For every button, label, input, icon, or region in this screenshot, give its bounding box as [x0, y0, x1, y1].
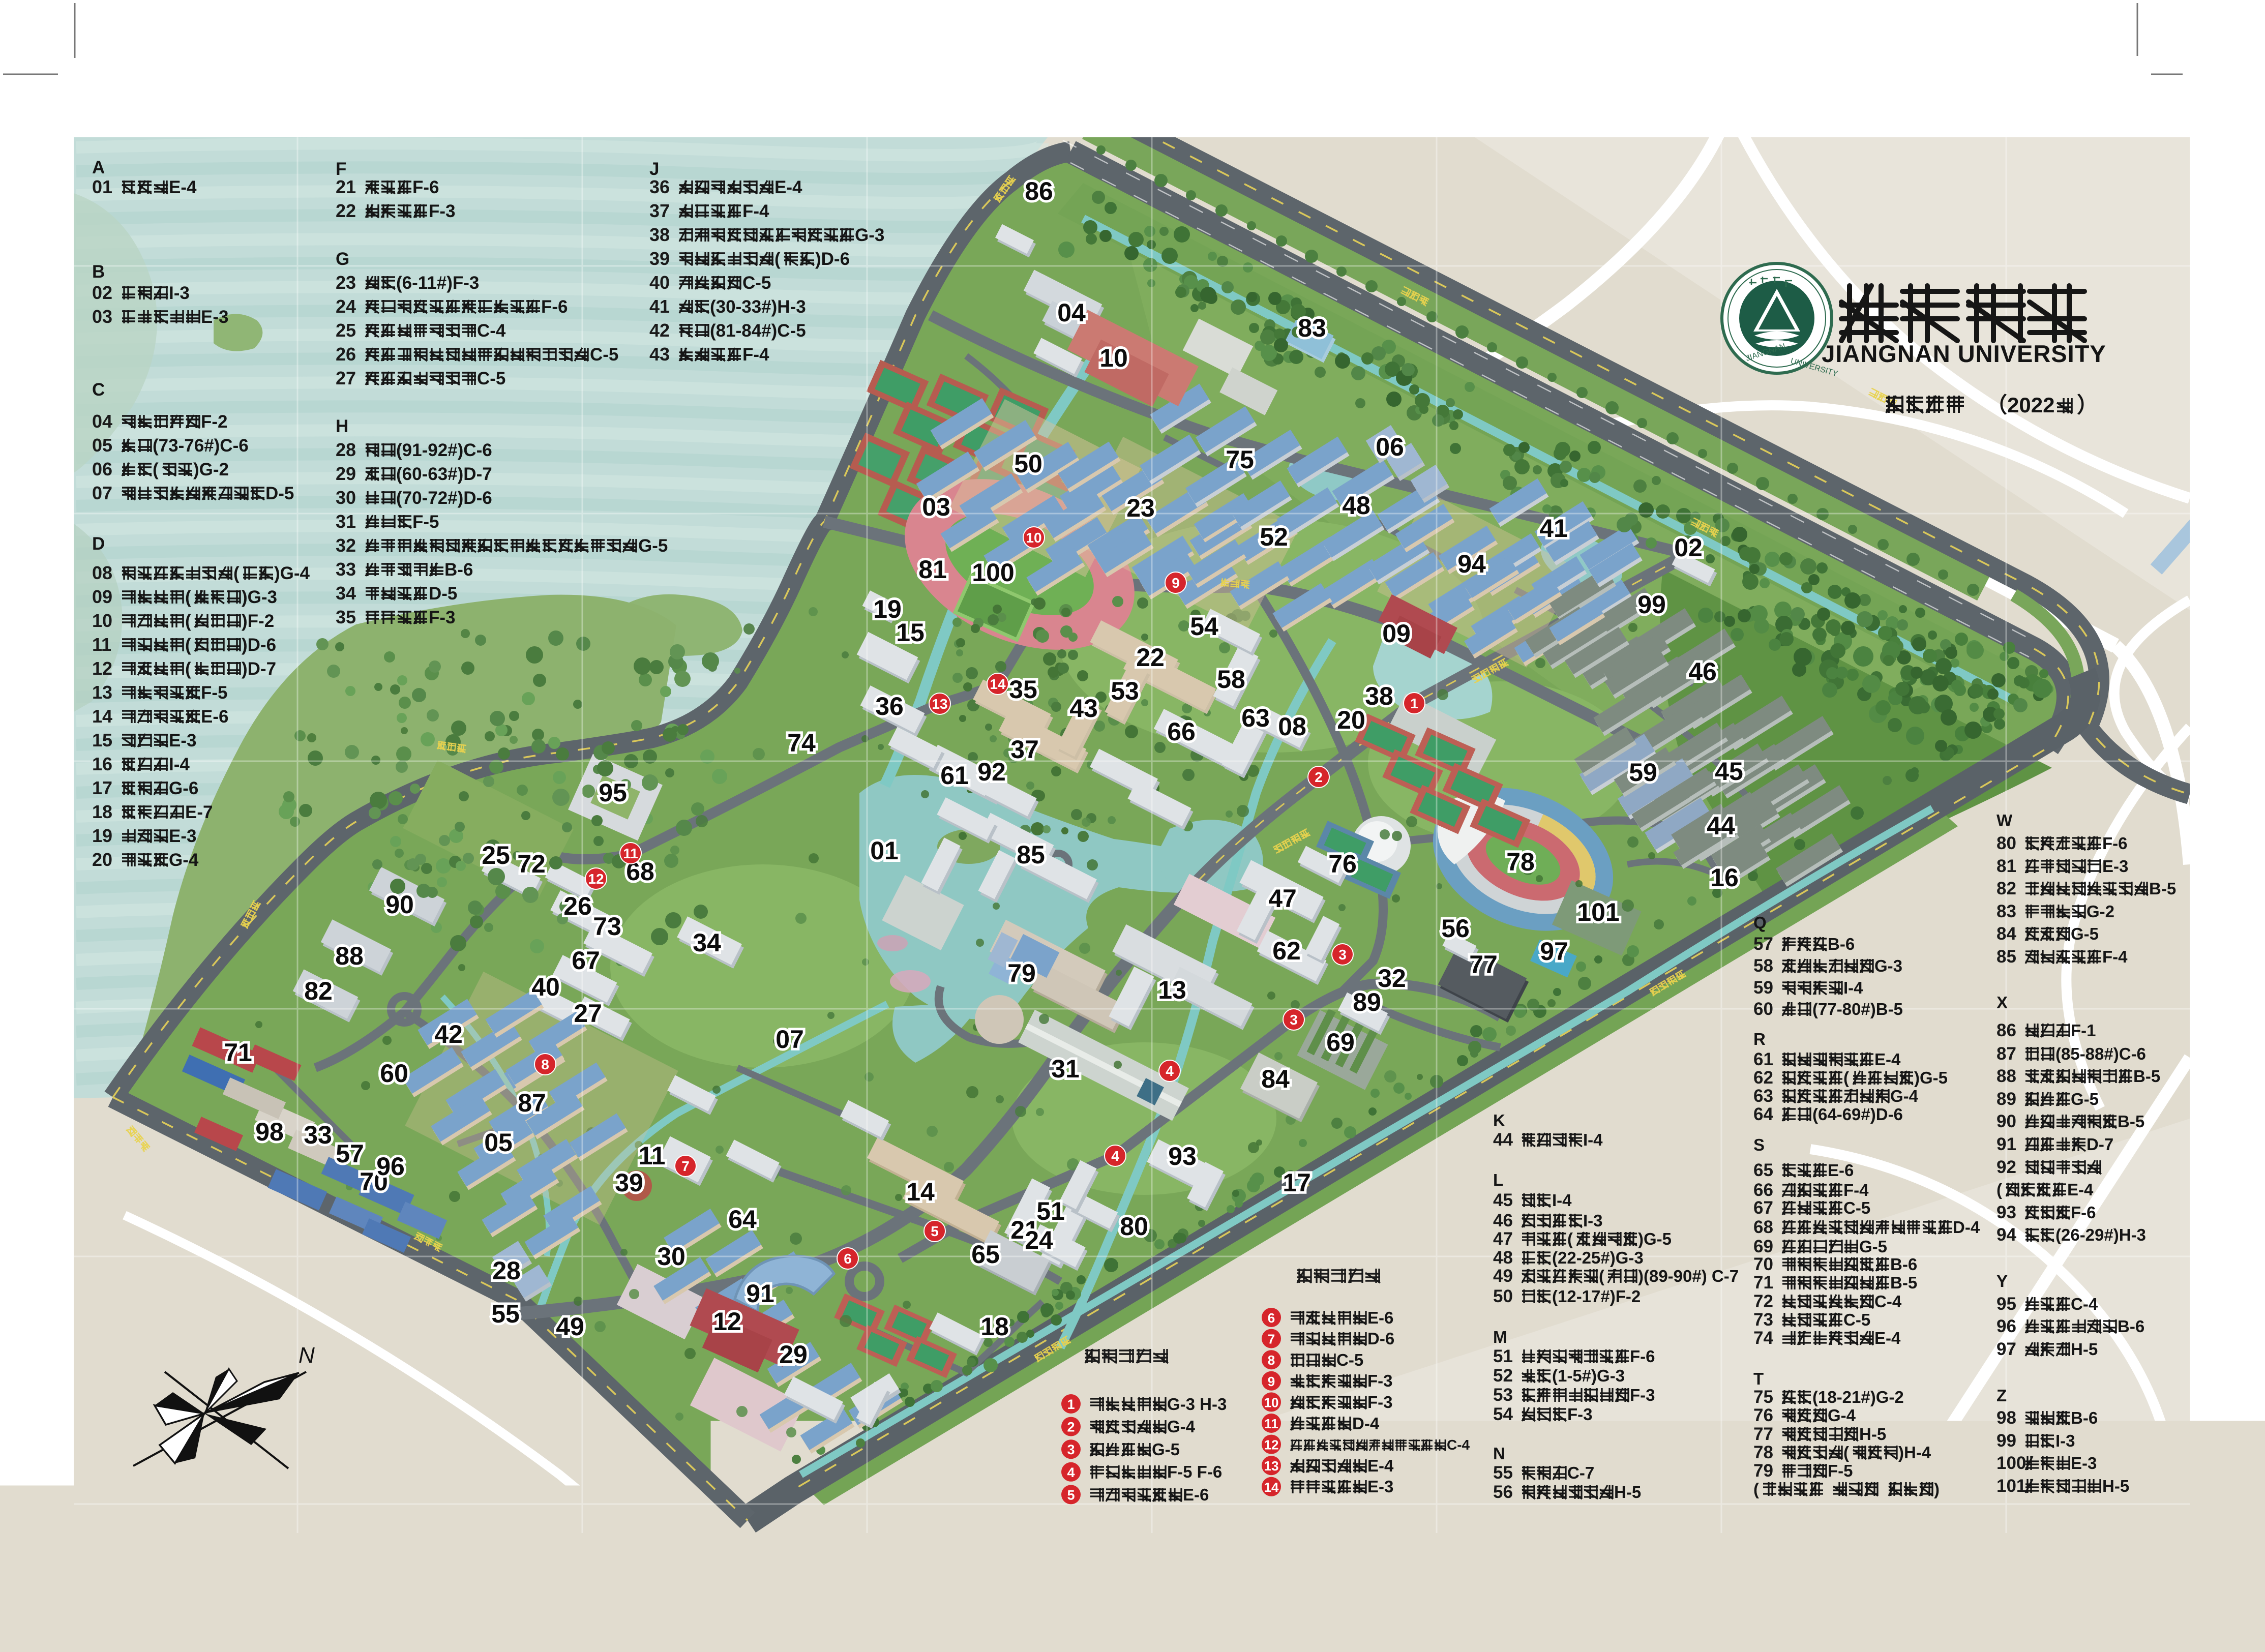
svg-text:75: 75	[1226, 445, 1254, 474]
svg-text:03: 03	[92, 306, 112, 327]
svg-text:C-5: C-5	[477, 369, 505, 388]
svg-text:01: 01	[870, 836, 899, 865]
svg-text:99: 99	[1637, 590, 1666, 619]
svg-text:B-5: B-5	[2118, 1112, 2144, 1131]
svg-text:F-5 F-6: F-5 F-6	[1167, 1462, 1222, 1481]
svg-text:72: 72	[1753, 1291, 1773, 1311]
svg-text:90: 90	[385, 890, 414, 919]
svg-text:93: 93	[1168, 1142, 1197, 1170]
svg-text:G-5: G-5	[1152, 1440, 1180, 1459]
svg-text:E-4: E-4	[1367, 1456, 1394, 1475]
svg-text:02: 02	[92, 282, 112, 303]
svg-text:D-5: D-5	[265, 484, 294, 503]
svg-text:I-4: I-4	[169, 755, 190, 774]
svg-text:E-6: E-6	[1828, 1161, 1854, 1180]
svg-text:F-2: F-2	[201, 412, 228, 432]
svg-text:(: (	[774, 249, 781, 269]
svg-text:F-5: F-5	[412, 512, 439, 532]
svg-text:F-4: F-4	[742, 345, 769, 365]
svg-text:C-7: C-7	[1567, 1463, 1594, 1482]
svg-text:101: 101	[1996, 1476, 2026, 1496]
svg-text:12: 12	[92, 658, 112, 679]
svg-text:14: 14	[990, 676, 1006, 692]
svg-text:F-1: F-1	[2071, 1021, 2096, 1040]
svg-text:G-2: G-2	[2087, 902, 2114, 921]
svg-text:(: (	[185, 611, 191, 631]
svg-text:66: 66	[1167, 717, 1196, 746]
svg-text:G-6: G-6	[169, 778, 198, 798]
svg-text:51: 51	[1493, 1346, 1513, 1366]
svg-text:46: 46	[1493, 1211, 1513, 1230]
svg-text:Y: Y	[1996, 1272, 2008, 1290]
svg-text:42: 42	[434, 1020, 463, 1048]
svg-text:8: 8	[1268, 1353, 1275, 1368]
svg-text:86: 86	[1996, 1020, 2016, 1040]
svg-text:D-7: D-7	[2087, 1135, 2113, 1154]
svg-text:C-5: C-5	[1843, 1310, 1870, 1329]
svg-text:88: 88	[1996, 1066, 2016, 1086]
svg-text:F-6: F-6	[2102, 834, 2128, 853]
svg-text:30: 30	[657, 1242, 686, 1271]
svg-text:50: 50	[1014, 449, 1042, 478]
svg-text:C-5: C-5	[742, 273, 771, 293]
svg-text:89: 89	[1996, 1089, 2016, 1109]
svg-text:45: 45	[1493, 1190, 1513, 1210]
svg-text:L: L	[1493, 1170, 1503, 1189]
svg-text:80: 80	[1996, 833, 2016, 853]
svg-text:29: 29	[336, 463, 356, 484]
svg-text:H-5: H-5	[1614, 1483, 1641, 1501]
svg-text:04: 04	[92, 411, 112, 432]
svg-text:(73-76#)C-6: (73-76#)C-6	[153, 436, 249, 456]
svg-text:65: 65	[971, 1240, 1000, 1269]
svg-text:94: 94	[1457, 550, 1486, 578]
svg-text:I-3: I-3	[169, 283, 190, 303]
svg-text:)F-2: )F-2	[242, 611, 274, 631]
svg-text:87: 87	[518, 1089, 546, 1117]
svg-text:1: 1	[1410, 696, 1418, 711]
svg-text:)G-3: )G-3	[242, 587, 277, 607]
svg-text:39: 39	[615, 1168, 643, 1197]
svg-text:11: 11	[92, 634, 111, 655]
svg-text:(: (	[1843, 1443, 1849, 1462]
svg-text:20: 20	[92, 849, 112, 870]
svg-text:F-4: F-4	[2102, 947, 2128, 966]
svg-text:G-3: G-3	[855, 225, 884, 245]
svg-text:(: (	[1843, 1068, 1849, 1087]
svg-text:81: 81	[918, 555, 947, 584]
svg-text:I-4: I-4	[1552, 1191, 1572, 1210]
svg-text:79: 79	[1007, 959, 1036, 987]
svg-text:7: 7	[681, 1158, 690, 1174]
svg-text:C-5: C-5	[1843, 1198, 1870, 1217]
svg-text:16: 16	[92, 754, 112, 774]
svg-text:71: 71	[1753, 1273, 1773, 1293]
svg-text:17: 17	[92, 777, 112, 798]
svg-text:97: 97	[1996, 1339, 2016, 1359]
svg-text:9: 9	[1268, 1374, 1275, 1389]
svg-text:12: 12	[713, 1307, 741, 1336]
svg-text:(6-11#)F-3: (6-11#)F-3	[396, 273, 479, 293]
svg-text:09: 09	[92, 586, 112, 607]
svg-text:I-4: I-4	[1583, 1130, 1603, 1149]
svg-text:5: 5	[931, 1223, 939, 1239]
svg-text:)D-6: )D-6	[815, 249, 850, 269]
svg-text:68: 68	[1753, 1217, 1773, 1237]
svg-text:21: 21	[336, 176, 356, 197]
svg-text:42: 42	[649, 320, 670, 341]
svg-text:10: 10	[92, 610, 112, 631]
svg-text:77: 77	[1469, 950, 1498, 979]
svg-text:34: 34	[336, 583, 356, 604]
svg-text:78: 78	[1753, 1443, 1773, 1462]
svg-text:62: 62	[1753, 1068, 1773, 1088]
svg-text:64: 64	[1753, 1104, 1773, 1124]
svg-text:13: 13	[932, 696, 947, 712]
svg-text:13: 13	[92, 682, 112, 703]
svg-text:72: 72	[517, 850, 546, 878]
svg-text:50: 50	[1493, 1286, 1513, 1306]
svg-text:E-6: E-6	[1367, 1308, 1393, 1327]
svg-text:70: 70	[1753, 1254, 1773, 1274]
svg-text:9: 9	[1172, 575, 1180, 591]
svg-text:26: 26	[336, 344, 356, 365]
svg-text:29: 29	[779, 1340, 808, 1369]
svg-text:55: 55	[491, 1300, 520, 1328]
svg-text:98: 98	[1996, 1408, 2016, 1428]
svg-text:16: 16	[1710, 863, 1739, 892]
svg-text:07: 07	[776, 1025, 804, 1054]
svg-text:69: 69	[1753, 1237, 1773, 1256]
svg-text:01: 01	[92, 176, 112, 197]
svg-text:85: 85	[1017, 840, 1045, 869]
svg-text:R: R	[1753, 1030, 1766, 1048]
svg-text:D: D	[92, 534, 105, 554]
svg-text:100: 100	[972, 558, 1014, 587]
svg-text:B-5: B-5	[1890, 1273, 1917, 1292]
svg-text:07: 07	[92, 483, 112, 503]
svg-text:31: 31	[336, 511, 356, 532]
svg-text:(: (	[185, 587, 191, 607]
svg-text:39: 39	[649, 248, 670, 269]
svg-text:83: 83	[1996, 902, 2016, 921]
svg-text:38: 38	[1365, 682, 1393, 710]
svg-text:87: 87	[1996, 1044, 2016, 1064]
svg-text:96: 96	[376, 1152, 405, 1181]
svg-text:63: 63	[1241, 704, 1270, 732]
svg-text:61: 61	[940, 761, 969, 790]
svg-text:52: 52	[1493, 1366, 1513, 1386]
svg-text:62: 62	[1272, 937, 1301, 965]
svg-text:55: 55	[1493, 1463, 1513, 1483]
svg-text:(: (	[1599, 1267, 1604, 1285]
svg-text:24: 24	[1025, 1226, 1053, 1254]
svg-text:25: 25	[482, 841, 510, 869]
svg-text:100: 100	[1996, 1453, 2026, 1473]
svg-text:(81-84#)C-5: (81-84#)C-5	[710, 321, 806, 341]
svg-text:47: 47	[1493, 1229, 1513, 1249]
svg-text:79: 79	[1753, 1461, 1773, 1481]
svg-text:F-3: F-3	[429, 608, 456, 627]
svg-text:E-4: E-4	[2067, 1180, 2094, 1199]
svg-text:H: H	[336, 416, 348, 436]
svg-text:G-4: G-4	[1167, 1417, 1196, 1436]
svg-text:76: 76	[1753, 1405, 1773, 1425]
svg-text:F-3: F-3	[1367, 1393, 1393, 1411]
svg-text:）: ）	[2077, 393, 2098, 417]
svg-text:59: 59	[1629, 758, 1657, 787]
svg-text:05: 05	[92, 435, 112, 456]
svg-text:12: 12	[1264, 1437, 1279, 1453]
svg-text:44: 44	[1493, 1130, 1513, 1150]
svg-text:3: 3	[1338, 947, 1347, 963]
svg-text:B-6: B-6	[1890, 1255, 1917, 1274]
svg-text:(64-69#)D-6: (64-69#)D-6	[1812, 1105, 1903, 1124]
svg-text:E-6: E-6	[201, 707, 228, 727]
svg-text:49: 49	[556, 1312, 584, 1341]
svg-text:F-3: F-3	[1630, 1386, 1655, 1404]
svg-text:N: N	[1493, 1444, 1505, 1463]
svg-text:73: 73	[593, 912, 621, 941]
svg-text:F-6: F-6	[1630, 1347, 1655, 1366]
svg-text:(12-17#)F-2: (12-17#)F-2	[1552, 1287, 1641, 1306]
svg-text:C-4: C-4	[1874, 1292, 1902, 1311]
svg-text:28: 28	[336, 439, 356, 460]
svg-text:4: 4	[1067, 1465, 1075, 1480]
svg-text:10: 10	[1099, 344, 1128, 372]
svg-text:57: 57	[336, 1139, 364, 1168]
svg-text:S: S	[1753, 1135, 1765, 1154]
svg-text:C-4: C-4	[2071, 1295, 2098, 1313]
svg-text:B-6: B-6	[444, 560, 473, 580]
svg-text:74: 74	[1753, 1328, 1773, 1348]
svg-text:90: 90	[1996, 1112, 2016, 1131]
svg-text:E-3: E-3	[201, 307, 228, 327]
svg-text:)G-2: )G-2	[193, 460, 229, 479]
svg-text:18: 18	[980, 1312, 1009, 1341]
svg-text:M: M	[1493, 1328, 1507, 1346]
svg-text:3: 3	[1290, 1012, 1298, 1028]
svg-text:25: 25	[336, 320, 356, 341]
svg-text:89: 89	[1353, 988, 1381, 1016]
svg-text:T: T	[1753, 1369, 1764, 1388]
svg-text:4: 4	[1166, 1063, 1174, 1079]
svg-text:43: 43	[649, 344, 670, 365]
svg-text:17: 17	[1283, 1168, 1311, 1197]
svg-text:11: 11	[623, 846, 638, 861]
svg-text:E-3: E-3	[169, 826, 196, 846]
svg-text:N: N	[299, 1343, 315, 1368]
svg-text:52: 52	[1260, 523, 1288, 551]
svg-text:94: 94	[1996, 1225, 2016, 1245]
svg-text:11: 11	[1264, 1416, 1278, 1431]
svg-text:69: 69	[1326, 1028, 1355, 1057]
svg-text:32: 32	[336, 535, 356, 556]
svg-text:)G-5: )G-5	[1914, 1068, 1948, 1087]
svg-text:54: 54	[1493, 1404, 1513, 1424]
svg-text:33: 33	[336, 559, 356, 580]
svg-text:46: 46	[1688, 657, 1717, 686]
svg-text:28: 28	[492, 1256, 521, 1285]
svg-text:81: 81	[1996, 856, 2016, 876]
svg-text:(60-63#)D-7: (60-63#)D-7	[396, 464, 492, 484]
svg-text:06: 06	[92, 459, 112, 479]
svg-text:I-4: I-4	[1843, 978, 1863, 997]
svg-text:53: 53	[1111, 677, 1139, 705]
svg-text:B-5: B-5	[2133, 1067, 2160, 1086]
svg-text:41: 41	[1539, 514, 1568, 543]
svg-text:E-4: E-4	[774, 177, 802, 197]
svg-text:34: 34	[693, 928, 721, 957]
svg-text:67: 67	[572, 946, 600, 975]
svg-text:66: 66	[1753, 1180, 1773, 1200]
svg-text:82: 82	[1996, 879, 2016, 898]
svg-text:(: (	[1753, 1480, 1759, 1498]
svg-text:11: 11	[639, 1142, 666, 1170]
svg-text:36: 36	[649, 176, 670, 197]
svg-text:83: 83	[1298, 314, 1326, 342]
svg-text:30: 30	[336, 487, 356, 508]
svg-text:F-5: F-5	[1828, 1461, 1853, 1480]
svg-text:F-6: F-6	[412, 177, 439, 197]
svg-text:63: 63	[1753, 1086, 1773, 1106]
svg-text:95: 95	[599, 778, 627, 807]
svg-text:26: 26	[563, 892, 592, 920]
svg-text:40: 40	[649, 272, 670, 293]
svg-text:47: 47	[1268, 884, 1297, 913]
svg-text:82: 82	[304, 977, 333, 1005]
svg-text:E-7: E-7	[185, 802, 213, 822]
svg-text:19: 19	[873, 595, 902, 623]
svg-text:(30-33#)H-3: (30-33#)H-3	[710, 297, 806, 317]
svg-text:X: X	[1996, 993, 2008, 1012]
svg-text:F-3: F-3	[1367, 1371, 1393, 1390]
svg-text:92: 92	[977, 758, 1006, 786]
svg-text:(70-72#)D-6: (70-72#)D-6	[396, 488, 492, 508]
svg-text:84: 84	[1996, 924, 2016, 944]
svg-text:37: 37	[1010, 735, 1039, 764]
svg-text:14: 14	[92, 706, 112, 727]
svg-text:37: 37	[649, 200, 670, 221]
svg-text:96: 96	[1996, 1316, 2016, 1336]
svg-text:K: K	[1493, 1111, 1505, 1130]
svg-text:G-3 H-3: G-3 H-3	[1167, 1395, 1227, 1414]
svg-text:54: 54	[1190, 612, 1218, 641]
svg-text:3: 3	[1067, 1442, 1075, 1457]
svg-text:57: 57	[1753, 934, 1773, 954]
svg-text:35: 35	[1009, 675, 1037, 704]
svg-text:71: 71	[224, 1038, 252, 1067]
svg-text:): )	[1934, 1480, 1940, 1498]
svg-text:)G-4: )G-4	[274, 563, 310, 583]
svg-text:65: 65	[1753, 1160, 1773, 1180]
svg-text:48: 48	[1342, 491, 1370, 520]
svg-text:JIANGNAN UNIVERSITY: JIANGNAN UNIVERSITY	[1822, 340, 2106, 367]
svg-text:I-3: I-3	[1583, 1211, 1603, 1230]
svg-text:92: 92	[1996, 1157, 2016, 1177]
svg-text:60: 60	[1753, 999, 1773, 1019]
svg-text:53: 53	[1493, 1385, 1513, 1405]
svg-text:D-5: D-5	[429, 584, 457, 604]
svg-text:E-4: E-4	[169, 177, 197, 197]
svg-text:Q: Q	[1753, 913, 1767, 932]
svg-text:09: 09	[1382, 619, 1411, 648]
svg-text:(18-21#)G-2: (18-21#)G-2	[1812, 1388, 1904, 1406]
svg-text:(77-80#)B-5: (77-80#)B-5	[1812, 1000, 1903, 1018]
svg-text:49: 49	[1493, 1266, 1513, 1286]
svg-text:101: 101	[1577, 898, 1619, 926]
svg-text:64: 64	[728, 1205, 757, 1234]
svg-text:22: 22	[1136, 643, 1165, 672]
svg-text:08: 08	[92, 562, 112, 583]
svg-text:8: 8	[541, 1057, 549, 1072]
svg-text:14: 14	[1264, 1480, 1279, 1495]
svg-text:44: 44	[1707, 812, 1735, 840]
svg-text:)D-7: )D-7	[242, 659, 276, 679]
svg-text:02: 02	[1674, 533, 1703, 562]
svg-text:7: 7	[1268, 1332, 1275, 1347]
svg-text:48: 48	[1493, 1248, 1513, 1268]
svg-text:F-5: F-5	[201, 683, 228, 703]
svg-text:91: 91	[746, 1279, 774, 1308]
svg-text:(: (	[153, 460, 159, 479]
svg-text:77: 77	[1753, 1424, 1773, 1444]
svg-text:E-3: E-3	[1367, 1477, 1393, 1496]
svg-text:76: 76	[1328, 850, 1357, 878]
svg-text:Z: Z	[1996, 1386, 2007, 1405]
svg-text:(: (	[1567, 1229, 1573, 1248]
svg-text:41: 41	[649, 296, 670, 317]
svg-text:(: (	[185, 635, 191, 655]
svg-text:24: 24	[336, 296, 356, 317]
svg-text:99: 99	[1996, 1431, 2016, 1451]
svg-text:B-6: B-6	[2071, 1408, 2098, 1427]
svg-text:(26-29#)H-3: (26-29#)H-3	[2055, 1225, 2146, 1244]
svg-text:F-3: F-3	[1567, 1405, 1593, 1424]
svg-text:G-4: G-4	[169, 850, 199, 870]
svg-text:03: 03	[922, 493, 950, 521]
svg-text:84: 84	[1261, 1065, 1290, 1093]
svg-text:C-5: C-5	[590, 345, 618, 365]
svg-text:E-4: E-4	[1874, 1050, 1901, 1069]
svg-text:56: 56	[1493, 1482, 1513, 1502]
svg-text:86: 86	[1025, 177, 1053, 205]
svg-text:B-6: B-6	[2118, 1317, 2144, 1336]
svg-text:10: 10	[1264, 1395, 1279, 1410]
svg-text:60: 60	[380, 1059, 408, 1088]
svg-text:)G-5: )G-5	[1638, 1229, 1672, 1248]
svg-text:G-5: G-5	[2071, 1090, 2099, 1108]
svg-text:6: 6	[844, 1251, 852, 1267]
svg-text:23: 23	[1126, 494, 1155, 522]
svg-text:C-4: C-4	[477, 321, 506, 341]
svg-text:91: 91	[1996, 1134, 2016, 1154]
svg-text:51: 51	[1036, 1197, 1065, 1225]
svg-text:6: 6	[1268, 1310, 1275, 1326]
svg-text:19: 19	[92, 825, 112, 846]
svg-text:85: 85	[1996, 947, 2016, 967]
svg-text:W: W	[1996, 811, 2013, 830]
svg-text:20: 20	[1337, 706, 1365, 734]
svg-text:E-4: E-4	[1874, 1329, 1901, 1347]
svg-text:G-5: G-5	[638, 536, 668, 556]
svg-text:43: 43	[1069, 694, 1098, 723]
svg-text:4: 4	[1111, 1148, 1119, 1164]
svg-text:G-4: G-4	[1890, 1087, 1919, 1105]
svg-text:23: 23	[336, 272, 356, 293]
svg-text:)(89-90#) C-7: )(89-90#) C-7	[1638, 1267, 1739, 1285]
svg-text:67: 67	[1753, 1198, 1773, 1218]
